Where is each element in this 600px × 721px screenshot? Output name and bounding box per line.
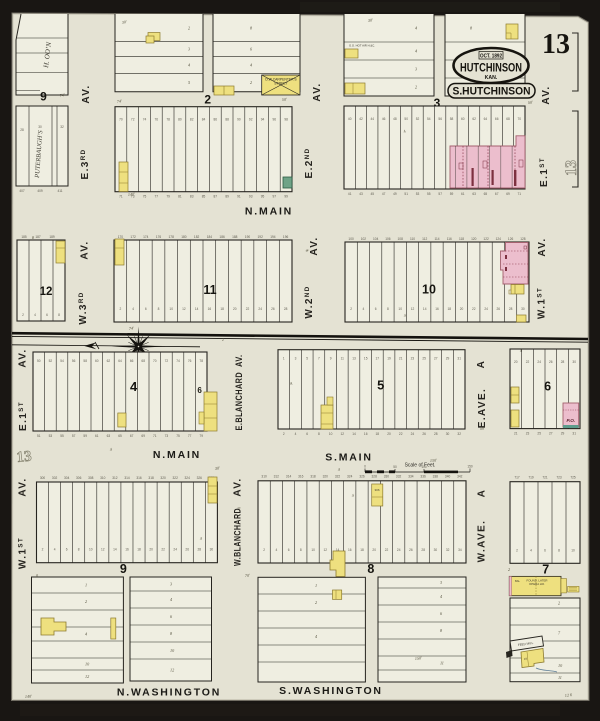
svg-text:140′: 140′ <box>128 191 136 197</box>
svg-text:42: 42 <box>359 117 363 121</box>
svg-text:99: 99 <box>284 195 288 199</box>
svg-text:342: 342 <box>457 475 463 479</box>
svg-text:182: 182 <box>194 235 200 239</box>
svg-text:40: 40 <box>348 117 352 121</box>
svg-text:62: 62 <box>107 359 111 363</box>
svg-text:15: 15 <box>364 357 368 361</box>
svg-text:HUTCHINSON: HUTCHINSON <box>460 61 522 75</box>
svg-text:124: 124 <box>496 237 502 241</box>
svg-text:102: 102 <box>361 237 367 241</box>
svg-text:18: 18 <box>360 548 364 552</box>
svg-text:310: 310 <box>261 475 267 479</box>
svg-text:320: 320 <box>323 475 329 479</box>
svg-text:150: 150 <box>467 465 473 469</box>
svg-text:85: 85 <box>202 195 206 199</box>
svg-text:188: 188 <box>232 235 238 239</box>
svg-text:STREET: STREET <box>274 82 287 86</box>
svg-text:409: 409 <box>37 189 43 193</box>
svg-text:26: 26 <box>549 360 553 364</box>
svg-text:22: 22 <box>161 548 165 552</box>
svg-text:5: 5 <box>188 80 190 85</box>
svg-text:10: 10 <box>329 432 333 436</box>
svg-text:316: 316 <box>298 475 304 479</box>
svg-text:6: 6 <box>544 380 551 394</box>
svg-text:112: 112 <box>422 237 427 241</box>
svg-text:108: 108 <box>398 237 404 241</box>
svg-text:2: 2 <box>22 313 24 317</box>
svg-text:4: 4 <box>415 26 417 31</box>
svg-text:50: 50 <box>404 117 408 121</box>
svg-text:6: 6 <box>288 548 290 552</box>
svg-text:58: 58 <box>83 359 87 363</box>
svg-text:310: 310 <box>100 476 106 480</box>
svg-text:174: 174 <box>143 235 149 239</box>
svg-text:10: 10 <box>89 548 93 552</box>
svg-text:31: 31 <box>572 432 576 436</box>
svg-text:4: 4 <box>363 307 365 311</box>
svg-text:150′: 150′ <box>415 655 423 661</box>
svg-text:100: 100 <box>348 237 354 241</box>
svg-text:18: 18 <box>448 307 452 311</box>
svg-text:AV.: AV. <box>232 477 243 496</box>
svg-text:91: 91 <box>237 195 241 199</box>
svg-text:24: 24 <box>397 548 401 552</box>
svg-text:32: 32 <box>457 432 461 436</box>
svg-text:S.WASHINGTON: S.WASHINGTON <box>279 685 383 697</box>
svg-text:54: 54 <box>427 117 431 121</box>
svg-text:13: 13 <box>352 357 356 361</box>
svg-text:98: 98 <box>284 118 288 122</box>
svg-text:50′: 50′ <box>528 99 534 105</box>
svg-text:64: 64 <box>118 359 122 363</box>
svg-text:330: 330 <box>384 475 390 479</box>
svg-text:322: 322 <box>335 475 341 479</box>
svg-text:4: 4 <box>415 49 417 54</box>
svg-text:72: 72 <box>165 359 169 363</box>
svg-text:11: 11 <box>341 357 345 361</box>
svg-text:120: 120 <box>471 237 477 241</box>
svg-text:66: 66 <box>495 117 499 121</box>
svg-text:56: 56 <box>438 117 442 121</box>
svg-text:172: 172 <box>130 235 136 239</box>
svg-text:50: 50 <box>37 359 41 363</box>
svg-text:2: 2 <box>283 432 285 436</box>
svg-text:59: 59 <box>450 192 454 196</box>
svg-text:11: 11 <box>440 661 444 666</box>
svg-text:12: 12 <box>170 668 174 673</box>
svg-text:64: 64 <box>484 117 488 121</box>
svg-text:6: 6 <box>66 548 68 552</box>
svg-text:76: 76 <box>155 118 159 122</box>
svg-text:80: 80 <box>178 118 182 122</box>
svg-text:30′: 30′ <box>121 19 127 25</box>
svg-text:77: 77 <box>155 195 159 199</box>
svg-text:84: 84 <box>202 118 206 122</box>
svg-text:31: 31 <box>457 357 461 361</box>
svg-text:23: 23 <box>526 432 530 436</box>
svg-text:717: 717 <box>514 476 520 480</box>
svg-text:21: 21 <box>399 357 403 361</box>
svg-text:4: 4 <box>130 379 138 394</box>
svg-text:N.MAIN: N.MAIN <box>153 449 201 461</box>
svg-text:4: 4 <box>170 597 172 602</box>
svg-text:26: 26 <box>422 432 426 436</box>
svg-text:2: 2 <box>508 567 510 572</box>
svg-text:18: 18 <box>220 307 224 311</box>
svg-text:51: 51 <box>404 192 408 196</box>
svg-text:AV.: AV. <box>18 348 29 367</box>
svg-text:122: 122 <box>483 237 489 241</box>
svg-text:OPERA HO.: OPERA HO. <box>529 582 545 586</box>
svg-text:8: 8 <box>300 548 302 552</box>
svg-text:81: 81 <box>178 195 182 199</box>
svg-text:19: 19 <box>387 357 391 361</box>
svg-text:21: 21 <box>514 432 518 436</box>
svg-text:4: 4 <box>440 594 442 599</box>
svg-text:13: 13 <box>563 160 580 176</box>
svg-text:2: 2 <box>42 548 44 552</box>
svg-text:723: 723 <box>556 476 562 480</box>
svg-text:7: 7 <box>542 563 549 577</box>
svg-text:22: 22 <box>385 548 389 552</box>
svg-text:14: 14 <box>195 307 199 311</box>
svg-text:8: 8 <box>158 307 160 311</box>
svg-text:65: 65 <box>118 434 122 438</box>
svg-text:22: 22 <box>399 432 403 436</box>
svg-text:95: 95 <box>261 195 265 199</box>
svg-text:2: 2 <box>558 601 560 606</box>
svg-text:0: 0 <box>364 465 366 469</box>
svg-text:P.O.: P.O. <box>566 418 575 423</box>
svg-text:70: 70 <box>119 118 123 122</box>
svg-text:6: 6 <box>46 313 48 317</box>
svg-text:70′: 70′ <box>245 573 251 578</box>
svg-text:32: 32 <box>446 548 450 552</box>
svg-text:24: 24 <box>411 432 415 436</box>
svg-text:9: 9 <box>40 90 47 104</box>
svg-text:30′: 30′ <box>367 17 373 23</box>
svg-text:4: 4 <box>132 307 134 311</box>
svg-text:59: 59 <box>83 434 87 438</box>
svg-text:194: 194 <box>270 235 276 239</box>
svg-text:5: 5 <box>306 357 308 361</box>
svg-text:302: 302 <box>52 476 58 480</box>
svg-text:26: 26 <box>409 548 413 552</box>
svg-text:AV.: AV. <box>312 82 323 101</box>
svg-text:30: 30 <box>572 360 576 364</box>
svg-text:312: 312 <box>274 475 280 479</box>
svg-text:34: 34 <box>458 548 462 552</box>
svg-text:74′: 74′ <box>129 325 135 331</box>
svg-text:314: 314 <box>286 475 292 479</box>
svg-text:50′: 50′ <box>480 425 486 431</box>
svg-text:178: 178 <box>169 235 175 239</box>
svg-text:50: 50 <box>393 465 397 469</box>
svg-text:20: 20 <box>149 548 153 552</box>
svg-text:316: 316 <box>136 476 142 480</box>
svg-text:338: 338 <box>433 475 439 479</box>
svg-text:S.HUTCHINSON: S.HUTCHINSON <box>453 86 531 98</box>
svg-text:10: 10 <box>311 548 315 552</box>
svg-text:E.BLANCHARD AV.: E.BLANCHARD AV. <box>234 355 245 431</box>
svg-text:176: 176 <box>156 235 162 239</box>
svg-text:16: 16 <box>348 548 352 552</box>
svg-text:A: A <box>476 489 487 498</box>
svg-text:58: 58 <box>450 117 454 121</box>
svg-text:24: 24 <box>537 360 541 364</box>
svg-text:67: 67 <box>495 192 499 196</box>
svg-text:E.AVE.: E.AVE. <box>477 388 488 428</box>
svg-text:22: 22 <box>246 307 250 311</box>
svg-text:1: 1 <box>85 583 87 588</box>
svg-text:92: 92 <box>249 118 253 122</box>
svg-text:6: 6 <box>375 307 377 311</box>
svg-text:72: 72 <box>131 118 135 122</box>
svg-text:2: 2 <box>315 600 317 605</box>
svg-text:14: 14 <box>352 432 356 436</box>
svg-text:G.O. HOT AIR H.&C.: G.O. HOT AIR H.&C. <box>349 44 375 48</box>
svg-text:74: 74 <box>143 118 147 122</box>
svg-text:68: 68 <box>141 359 145 363</box>
svg-text:13: 13 <box>542 29 570 60</box>
svg-text:W.AVE.: W.AVE. <box>476 520 487 563</box>
svg-text:74: 74 <box>176 359 180 363</box>
svg-text:8: 8 <box>558 548 560 552</box>
svg-text:3: 3 <box>415 67 417 72</box>
svg-text:45: 45 <box>371 192 375 196</box>
svg-text:Scale of Feet.: Scale of Feet. <box>405 463 436 469</box>
svg-text:116: 116 <box>447 237 452 241</box>
svg-text:10: 10 <box>169 307 173 311</box>
svg-text:23: 23 <box>411 357 415 361</box>
svg-text:65: 65 <box>484 192 488 196</box>
svg-text:28: 28 <box>421 548 425 552</box>
svg-text:300: 300 <box>40 476 46 480</box>
svg-text:55: 55 <box>427 192 431 196</box>
svg-text:73: 73 <box>165 434 169 438</box>
svg-text:79: 79 <box>199 434 203 438</box>
svg-text:110: 110 <box>410 237 415 241</box>
svg-text:340: 340 <box>445 475 451 479</box>
svg-text:3: 3 <box>440 580 442 585</box>
svg-text:24: 24 <box>173 548 177 552</box>
svg-text:189: 189 <box>49 235 55 239</box>
svg-text:2: 2 <box>516 548 518 552</box>
svg-text:N.MAIN: N.MAIN <box>245 206 293 218</box>
svg-text:32: 32 <box>60 125 64 129</box>
svg-text:180: 180 <box>181 235 187 239</box>
svg-text:89: 89 <box>225 195 229 199</box>
svg-text:27: 27 <box>549 432 553 436</box>
svg-text:322: 322 <box>173 476 179 480</box>
svg-text:86: 86 <box>214 118 218 122</box>
svg-text:AV.: AV. <box>80 240 91 259</box>
svg-text:3: 3 <box>295 357 297 361</box>
svg-text:✳: ✳ <box>305 248 309 253</box>
svg-text:4: 4 <box>315 634 317 639</box>
svg-text:16: 16 <box>208 307 212 311</box>
svg-text:8: 8 <box>318 432 320 436</box>
svg-text:312: 312 <box>112 476 118 480</box>
svg-text:12: 12 <box>341 432 345 436</box>
svg-text:54: 54 <box>60 359 64 363</box>
svg-text:104: 104 <box>373 237 379 241</box>
svg-text:26: 26 <box>497 307 501 311</box>
svg-text:4: 4 <box>34 313 36 317</box>
svg-text:30: 30 <box>434 548 438 552</box>
svg-text:16: 16 <box>435 307 439 311</box>
svg-text:63: 63 <box>472 192 476 196</box>
svg-text:150′: 150′ <box>430 458 438 463</box>
svg-text:71: 71 <box>518 192 522 196</box>
svg-text:8: 8 <box>78 548 80 552</box>
svg-text:2: 2 <box>250 80 252 85</box>
svg-text:53: 53 <box>49 434 53 438</box>
svg-text:70: 70 <box>153 359 157 363</box>
svg-text:26: 26 <box>185 548 189 552</box>
svg-text:719: 719 <box>528 476 534 480</box>
svg-text:100: 100 <box>421 465 427 469</box>
svg-text:17: 17 <box>376 357 380 361</box>
svg-text:24: 24 <box>258 307 262 311</box>
svg-text:75: 75 <box>176 434 180 438</box>
svg-text:43: 43 <box>359 192 363 196</box>
svg-text:52: 52 <box>416 117 420 121</box>
svg-text:725: 725 <box>570 476 576 480</box>
svg-text:187: 187 <box>35 235 41 239</box>
svg-text:118: 118 <box>459 237 464 241</box>
svg-text:67: 67 <box>130 434 134 438</box>
svg-text:11: 11 <box>558 675 562 680</box>
svg-text:44: 44 <box>371 117 375 121</box>
svg-text:63: 63 <box>107 434 111 438</box>
svg-text:185: 185 <box>21 235 27 239</box>
svg-text:7: 7 <box>318 357 320 361</box>
svg-text:192: 192 <box>258 235 264 239</box>
svg-text:1: 1 <box>283 357 285 361</box>
svg-text:4: 4 <box>85 632 87 637</box>
svg-text:186: 186 <box>219 235 225 239</box>
svg-text:46: 46 <box>382 117 386 121</box>
svg-text:47: 47 <box>382 192 386 196</box>
svg-text:28: 28 <box>198 548 202 552</box>
svg-text:20: 20 <box>460 307 464 311</box>
svg-text:57: 57 <box>438 192 442 196</box>
svg-text:12: 12 <box>324 548 328 552</box>
svg-text:13: 13 <box>16 448 33 465</box>
svg-text:OCT. 1892: OCT. 1892 <box>480 53 502 59</box>
svg-text:71: 71 <box>119 195 123 199</box>
svg-text:3: 3 <box>170 582 172 587</box>
svg-text:28: 28 <box>20 128 24 132</box>
svg-text:28: 28 <box>561 360 565 364</box>
svg-text:16: 16 <box>125 548 129 552</box>
svg-text:4: 4 <box>54 548 56 552</box>
svg-text:2: 2 <box>204 93 211 107</box>
svg-text:328: 328 <box>372 475 378 479</box>
svg-text:74′: 74′ <box>116 98 122 104</box>
svg-text:4: 4 <box>295 432 297 436</box>
svg-text:28: 28 <box>509 307 513 311</box>
svg-text:14: 14 <box>423 307 427 311</box>
svg-text:4: 4 <box>250 63 252 68</box>
svg-text:306: 306 <box>374 488 379 492</box>
svg-text:2: 2 <box>415 85 417 90</box>
svg-text:18: 18 <box>376 432 380 436</box>
svg-text:AV.: AV. <box>81 84 92 103</box>
svg-text:20: 20 <box>514 360 518 364</box>
svg-text:48: 48 <box>393 117 397 121</box>
svg-text:22: 22 <box>526 360 530 364</box>
svg-text:128: 128 <box>520 237 526 241</box>
svg-text:8: 8 <box>58 313 60 317</box>
svg-text:2: 2 <box>85 599 87 604</box>
svg-text:8: 8 <box>387 307 389 311</box>
svg-text:49: 49 <box>393 192 397 196</box>
svg-text:25: 25 <box>537 432 541 436</box>
svg-text:30′: 30′ <box>214 465 220 471</box>
svg-text:A: A <box>476 360 487 369</box>
svg-text:721: 721 <box>542 476 548 480</box>
svg-text:5: 5 <box>377 378 384 393</box>
svg-text:93: 93 <box>249 195 253 199</box>
svg-text:61: 61 <box>95 434 99 438</box>
svg-text:9: 9 <box>330 357 332 361</box>
svg-text:184: 184 <box>207 235 213 239</box>
svg-text:22: 22 <box>472 307 476 311</box>
svg-text:57: 57 <box>72 434 76 438</box>
svg-text:29: 29 <box>561 432 565 436</box>
svg-text:304: 304 <box>64 476 70 480</box>
svg-text:BAL: BAL <box>515 579 520 583</box>
svg-text:50′: 50′ <box>282 97 288 102</box>
svg-text:30: 30 <box>521 307 525 311</box>
svg-text:11: 11 <box>203 283 216 297</box>
svg-text:S.MAIN: S.MAIN <box>325 452 373 464</box>
svg-text:66: 66 <box>130 359 134 363</box>
svg-text:N.WASHINGTON: N.WASHINGTON <box>117 687 221 699</box>
svg-text:27: 27 <box>434 357 438 361</box>
svg-text:4: 4 <box>188 63 190 68</box>
svg-text:306: 306 <box>76 476 82 480</box>
svg-text:8: 8 <box>367 562 374 576</box>
svg-text:24: 24 <box>484 307 488 311</box>
svg-text:320: 320 <box>160 476 166 480</box>
svg-text:25: 25 <box>422 357 426 361</box>
svg-text:334: 334 <box>408 475 414 479</box>
svg-text:87: 87 <box>214 195 218 199</box>
svg-text:W.BLANCHARD: W.BLANCHARD <box>232 508 243 566</box>
svg-text:88: 88 <box>225 118 229 122</box>
svg-text:106: 106 <box>385 237 391 241</box>
svg-text:2: 2 <box>350 307 352 311</box>
svg-text:308: 308 <box>88 476 94 480</box>
svg-text:30: 30 <box>210 548 214 552</box>
svg-text:AV.: AV. <box>309 236 320 255</box>
svg-text:6: 6 <box>197 386 202 395</box>
svg-text:6: 6 <box>145 307 147 311</box>
svg-text:53: 53 <box>416 192 420 196</box>
svg-text:41: 41 <box>348 192 352 196</box>
svg-text:4: 4 <box>276 548 278 552</box>
svg-text:83: 83 <box>190 195 194 199</box>
svg-text:30: 30 <box>38 125 42 129</box>
svg-text:60: 60 <box>95 359 99 363</box>
svg-text:170: 170 <box>118 235 124 239</box>
svg-text:78: 78 <box>199 359 203 363</box>
svg-text:26: 26 <box>271 307 275 311</box>
svg-text:3: 3 <box>188 47 190 52</box>
